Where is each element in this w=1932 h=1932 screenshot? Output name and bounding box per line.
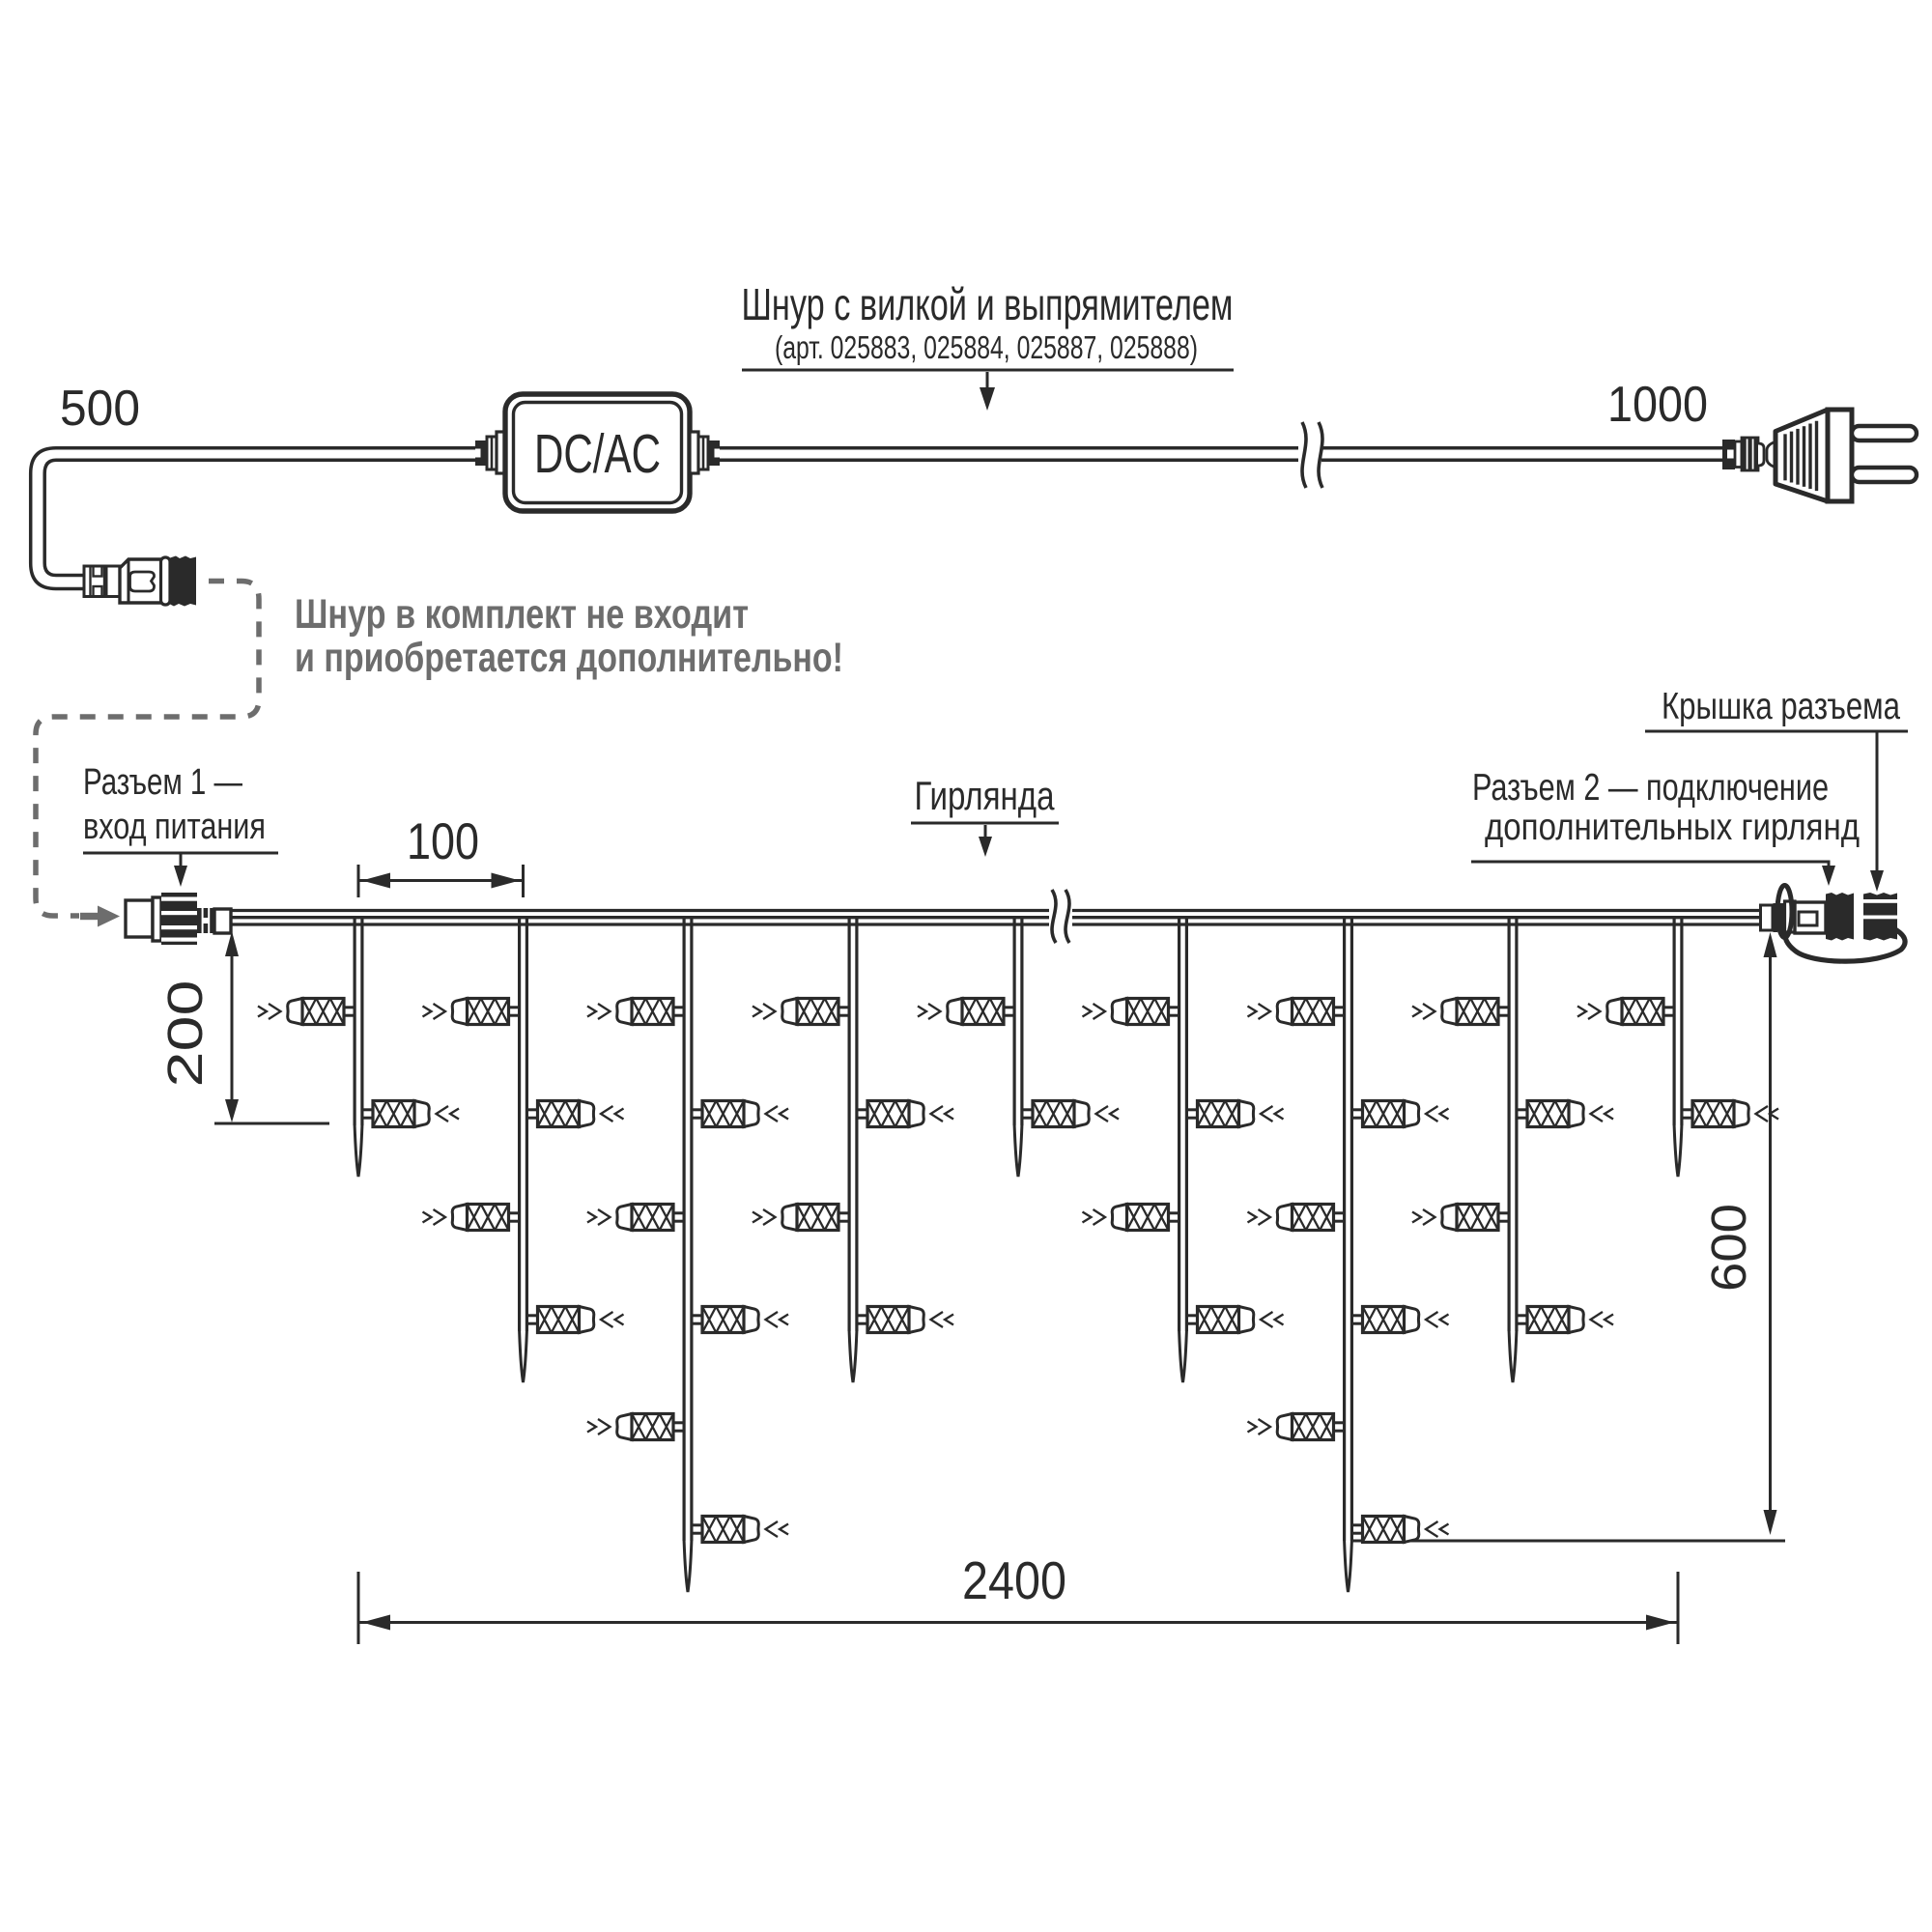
svg-text:100: 100 bbox=[407, 813, 479, 870]
svg-text:и приобретается дополнительно!: и приобретается дополнительно! bbox=[295, 635, 843, 681]
svg-text:Шнур в комплект не входит: Шнур в комплект не входит bbox=[295, 591, 749, 638]
svg-text:Гирлянда: Гирлянда bbox=[915, 773, 1056, 818]
svg-text:Разъем 2 — подключение: Разъем 2 — подключение bbox=[1472, 767, 1829, 809]
svg-text:DC/AC: DC/AC bbox=[534, 423, 661, 485]
svg-text:(арт. 025883, 025884, 025887,: (арт. 025883, 025884, 025887, 025888) bbox=[775, 329, 1198, 365]
svg-text:вход питания: вход питания bbox=[83, 807, 266, 847]
svg-text:1000: 1000 bbox=[1607, 377, 1708, 433]
svg-text:Разъем 1 —: Разъем 1 — bbox=[83, 762, 242, 803]
svg-text:600: 600 bbox=[1701, 1204, 1756, 1292]
svg-text:200: 200 bbox=[157, 980, 213, 1088]
svg-text:Шнур с вилкой и выпрямителем: Шнур с вилкой и выпрямителем bbox=[742, 279, 1234, 329]
svg-text:Крышка разъема: Крышка разъема bbox=[1662, 686, 1900, 727]
svg-text:500: 500 bbox=[60, 381, 140, 437]
svg-text:дополнительных гирлянд: дополнительных гирлянд bbox=[1485, 807, 1860, 848]
svg-text:2400: 2400 bbox=[962, 1550, 1066, 1610]
